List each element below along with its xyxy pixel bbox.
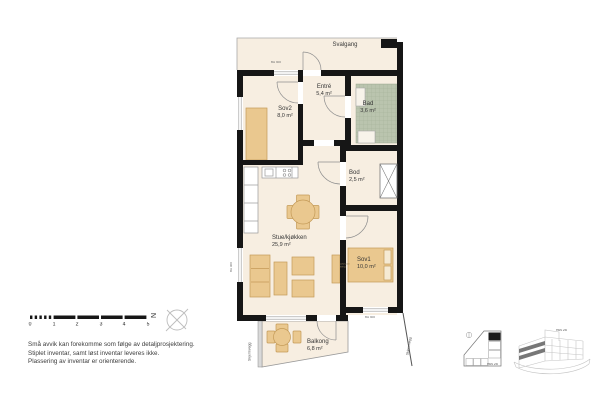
floor-plan-sheet: Svalgang Entré 5,4 m² Bad 3,6 m² Sov2 8,… — [0, 0, 600, 400]
vent-shaft — [380, 164, 397, 198]
bed-size-annotation: 180x200 seng — [340, 263, 351, 268]
entrance-door-opening — [303, 70, 321, 76]
scale-tick-0: 0 — [26, 322, 35, 327]
room-name: Sov1 — [357, 257, 376, 264]
room-name: Bod — [349, 170, 365, 177]
building-view-label: Hus 2B — [556, 329, 567, 332]
scale-tick-3: 3 — [97, 322, 106, 327]
disclaimer-line-3: Plassering av inventar er orienterende. — [28, 358, 195, 367]
room-area: 3,6 m² — [346, 108, 390, 115]
room-area: 10,0 m² — [357, 264, 376, 271]
scale-tick-2: 2 — [73, 322, 82, 327]
disclaimer-line-2: Stiplet inventar, samt løst inventar lev… — [28, 350, 195, 359]
scale-tick-5: 5 — [144, 322, 153, 327]
north-compass-icon — [166, 309, 188, 331]
room-area: 8,0 m² — [261, 113, 309, 120]
disclaimer: Små avvik kan forekomme som følge av det… — [28, 341, 195, 367]
floor-plan-drawing — [0, 0, 600, 400]
room-label-bad: Bad 3,6 m² — [346, 101, 390, 115]
room-name: Entré — [300, 84, 348, 91]
building-3d-sketch — [514, 330, 590, 374]
balcony-door-opening — [317, 315, 336, 321]
scale-tick-1: 1 — [49, 322, 58, 327]
screen-wall-left — [258, 321, 262, 367]
bath-fixture — [358, 131, 375, 143]
svalgang-label: Svalgang — [311, 42, 379, 49]
north-label: N — [151, 313, 158, 318]
room-area: 25,9 m² — [272, 242, 307, 249]
room-name: Bad — [346, 101, 390, 108]
room-area: 2,5 m² — [349, 177, 365, 184]
room-area: 6,8 m² — [307, 346, 329, 353]
svalgang-wall-block — [381, 39, 397, 48]
tv-bench — [332, 255, 340, 283]
room-label-bod: Bod 2,5 m² — [349, 170, 365, 184]
bh-annotation-top: BH 900 — [271, 61, 281, 64]
room-name: Balkong — [307, 339, 329, 346]
scale-tick-4: 4 — [120, 322, 129, 327]
bh-annotation-bottom: BH 900 — [365, 316, 375, 319]
room-label-sov1: Sov1 10,0 m² — [357, 257, 376, 271]
key-plan-label: Hus 2B — [487, 363, 498, 366]
key-plan-current-unit — [489, 333, 501, 341]
scale-bar — [30, 316, 146, 320]
room-label-sov2: Sov2 8,0 m² — [261, 106, 309, 120]
room-label-stue: Stue/kjøkken 25,9 m² — [272, 235, 307, 249]
room-name: Stue/kjøkken — [272, 235, 307, 242]
disclaimer-line-1: Små avvik kan forekomme som følge av det… — [28, 341, 195, 350]
room-name: Sov2 — [261, 106, 309, 113]
room-label-balkong: Balkong 6,8 m² — [307, 339, 329, 353]
skjermvegg-label-left: Skjermvegg — [248, 343, 251, 361]
key-plan — [464, 331, 501, 366]
room-label-entre: Entré 5,4 m² — [300, 84, 348, 98]
bh-annotation-left: BH 900 — [230, 262, 233, 272]
room-area: 5,4 m² — [300, 91, 348, 98]
